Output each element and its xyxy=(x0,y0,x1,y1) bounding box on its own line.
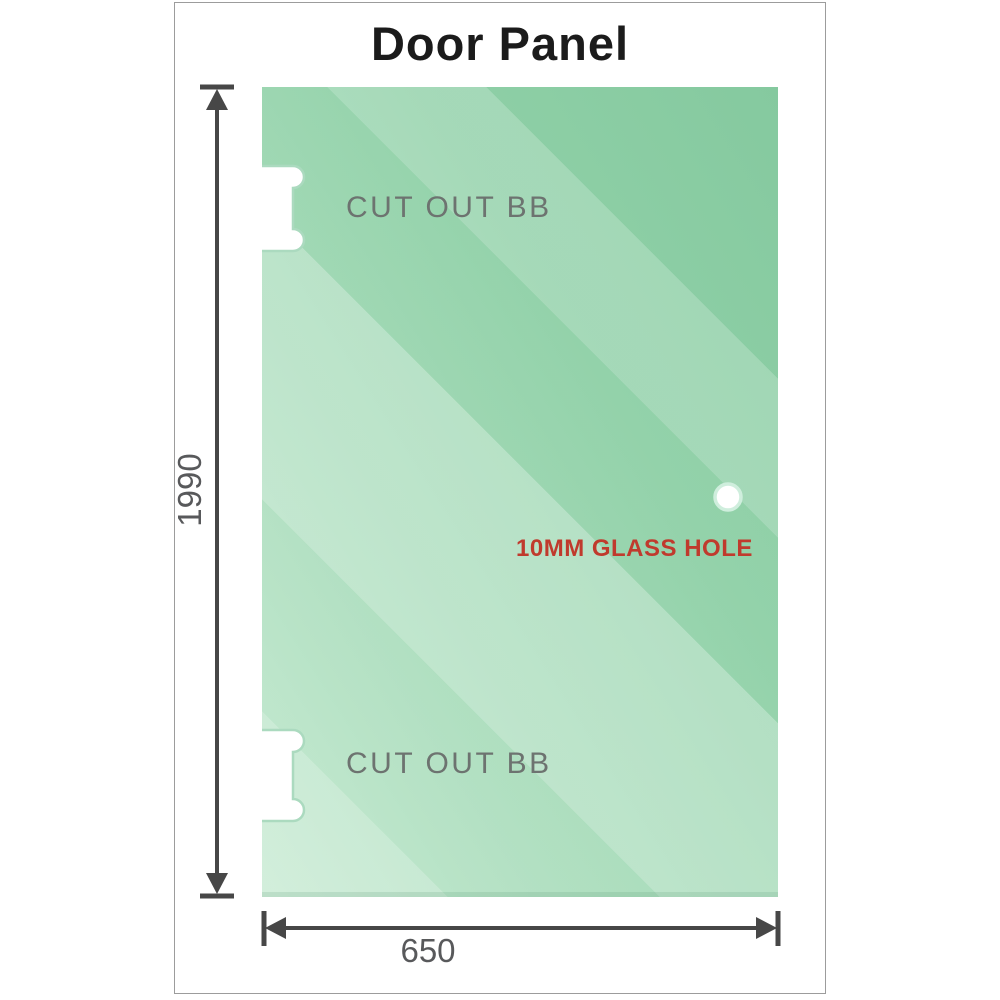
hinge-cutout-bottom-icon xyxy=(262,730,304,821)
height-dimension-value: 1990 xyxy=(173,430,209,550)
page-title: Door Panel xyxy=(174,20,826,67)
cutout-top-label: CUT OUT BB xyxy=(346,193,552,223)
cutout-bottom-label: CUT OUT BB xyxy=(346,749,552,779)
glass-hole-icon xyxy=(715,484,741,510)
hinge-cutout-top-icon xyxy=(262,166,304,251)
glass-hole-label: 10MM GLASS HOLE xyxy=(516,537,753,561)
door-panel-diagram: Door Panel CUT OUT BB CUT OUT BB 10MM GL… xyxy=(0,0,1000,1000)
width-dimension-value: 650 xyxy=(368,934,488,967)
glass-panel: CUT OUT BB CUT OUT BB 10MM GLASS HOLE xyxy=(262,87,778,897)
